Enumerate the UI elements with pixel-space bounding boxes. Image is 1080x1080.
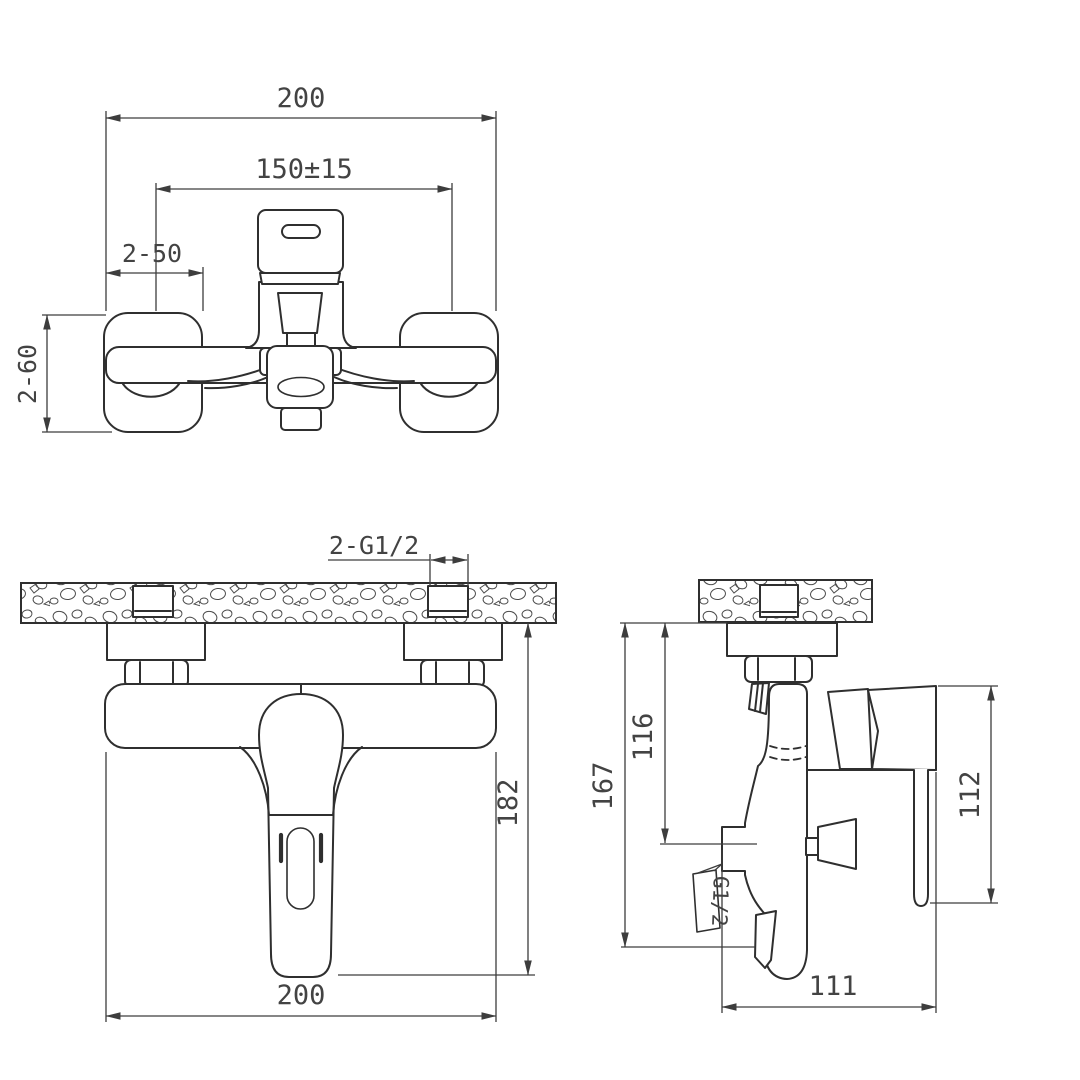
dim-escutcheon-height: 2-60 — [13, 344, 42, 404]
dim-overall-width-top: 200 — [277, 83, 326, 114]
hex-nut-side — [745, 656, 812, 682]
dim-escutcheon-width: 2-50 — [122, 239, 182, 268]
dim-handle-drop: 112 — [955, 771, 986, 820]
side-view-installed: G1/2 167 116 112 111 — [588, 580, 998, 1013]
hex-nut-left — [125, 660, 188, 687]
side-wall — [699, 580, 872, 622]
cartridge-cone — [278, 293, 322, 333]
dim-depth: 111 — [809, 971, 858, 1002]
hex-nut-right — [421, 660, 484, 687]
side-part: G1/2 — [693, 623, 936, 979]
dim-inlet-thread: 2-G1/2 — [329, 531, 419, 560]
handle-block-side — [868, 686, 936, 770]
dim-outlet-thread: G1/2 — [707, 876, 733, 927]
wall-escutcheon-right — [404, 623, 502, 660]
handle-grip-slot — [282, 225, 320, 238]
installed-part — [105, 623, 502, 977]
inlet-bracket — [749, 683, 769, 714]
front-view-detached: 200 150±15 2-50 2-60 — [13, 83, 498, 432]
technical-drawing-page: 200 150±15 2-50 2-60 — [0, 0, 1080, 1080]
lever-side-mask — [914, 769, 928, 906]
inlet-fitting-right — [428, 586, 468, 617]
dim-wall-to-diverter: 116 — [628, 713, 659, 762]
lever-handle-front — [258, 210, 343, 273]
faucet-dimension-drawing: 200 150±15 2-50 2-60 — [0, 0, 1080, 1080]
inlet-fitting-left — [133, 586, 173, 617]
front-view-installed: 2-G1/2 182 200 — [21, 531, 556, 1022]
handle-adapter — [828, 689, 872, 769]
wall-section-front — [21, 583, 556, 623]
diverter-knob — [818, 819, 856, 869]
diverter-front — [281, 408, 321, 430]
wall-escutcheon-left — [107, 623, 205, 660]
diverter-stem — [806, 838, 818, 855]
installed-wall — [21, 583, 556, 623]
dim-overall-width-bottom: 200 — [277, 980, 326, 1011]
dim-mounting-spacing: 150±15 — [255, 154, 353, 185]
dim-height-below-wall: 182 — [493, 779, 524, 828]
handle-collar — [260, 273, 340, 284]
dim-overall-height: 167 — [588, 762, 619, 811]
wall-escutcheon-side — [727, 623, 837, 656]
spout-outlet-opening — [278, 378, 324, 397]
lever-slot — [287, 828, 314, 909]
